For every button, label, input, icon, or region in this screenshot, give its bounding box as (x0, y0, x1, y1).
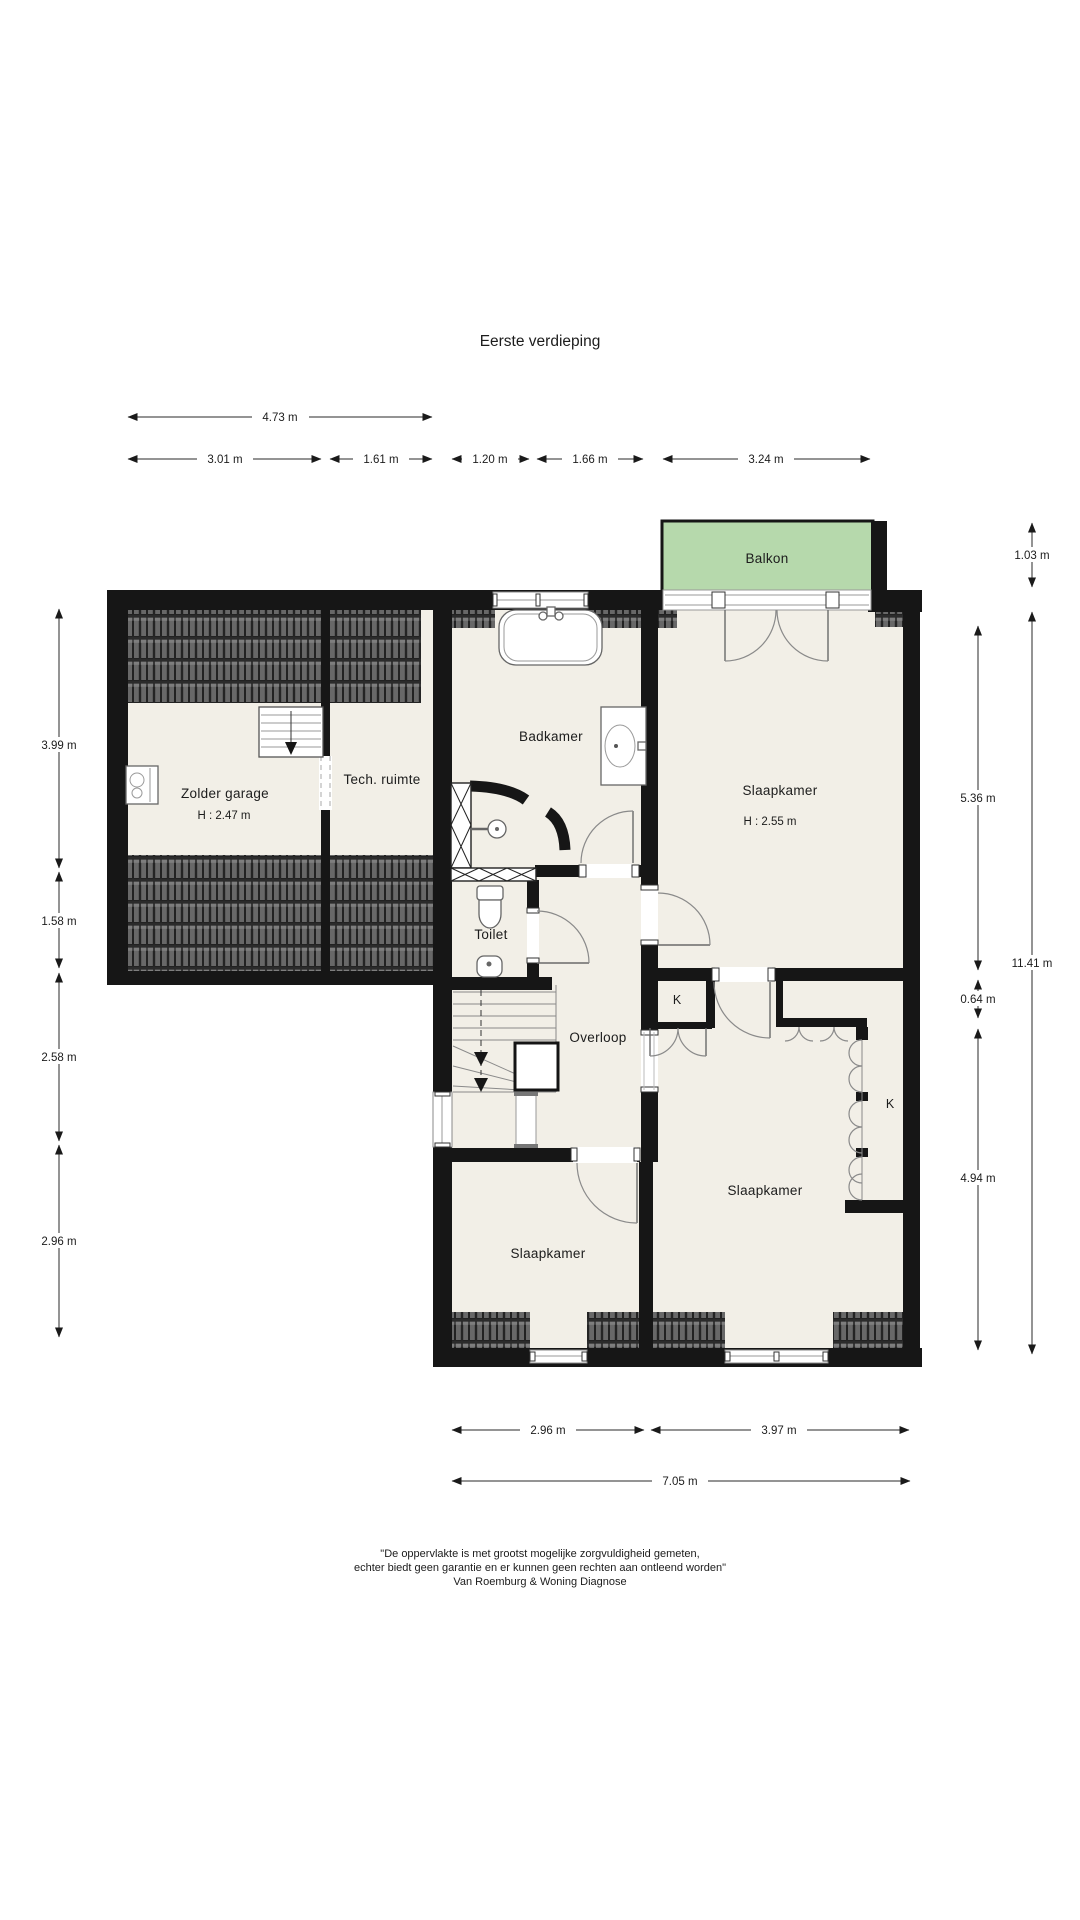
window-balkon-doors (663, 590, 871, 610)
floorplan-drawing: Eerste verdieping (0, 0, 1080, 1920)
radiator (516, 1094, 536, 1146)
bathtub (499, 607, 602, 665)
dim-top-seg-4: 3.24 m (748, 454, 783, 466)
dim-left-2: 2.58 m (41, 1052, 76, 1064)
dim-right-outer-1: 11.41 m (1012, 958, 1053, 970)
dim-top-seg-1: 1.61 m (363, 454, 398, 466)
dim-top-seg-3: 1.66 m (572, 454, 607, 466)
dim-top-seg-2: 1.20 m (472, 454, 507, 466)
boiler (126, 766, 158, 804)
label-kast-2: K (886, 1097, 895, 1111)
label-kast-1: K (673, 993, 682, 1007)
window-slaapkamer-se (725, 1350, 828, 1363)
label-tech-ruimte: Tech. ruimte (343, 772, 420, 787)
label-zolder-garage-height: H : 2.47 m (197, 810, 250, 822)
dim-top-total: 4.73 m (262, 412, 297, 424)
washbasin (601, 707, 646, 785)
disclaimer-line-1: "De oppervlakte is met grootst mogelijke… (380, 1548, 699, 1560)
label-overloop: Overloop (569, 1030, 626, 1045)
dim-bottom-total: 7.05 m (662, 1476, 697, 1488)
label-slaapkamer-sw: Slaapkamer (510, 1246, 585, 1261)
label-balkon: Balkon (745, 551, 788, 566)
page-title: Eerste verdieping (480, 333, 601, 350)
label-slaapkamer-se: Slaapkamer (727, 1183, 802, 1198)
dim-top-seg-0: 3.01 m (207, 454, 242, 466)
dim-right-inner-2: 4.94 m (960, 1173, 995, 1185)
dim-left-0: 3.99 m (41, 740, 76, 752)
label-badkamer: Badkamer (519, 729, 583, 744)
dim-left-1: 1.58 m (41, 916, 76, 928)
label-toilet: Toilet (474, 927, 507, 942)
disclaimer-line-3: Van Roemburg & Woning Diagnose (453, 1576, 626, 1588)
toilet-basin (477, 956, 502, 977)
disclaimer: "De oppervlakte is met grootst mogelijke… (354, 1548, 726, 1588)
dim-bottom-seg-1: 3.97 m (761, 1425, 796, 1437)
dim-right-outer-0: 1.03 m (1014, 550, 1049, 562)
dim-right-inner-0: 5.36 m (960, 793, 995, 805)
stairs-garage (259, 707, 323, 757)
dim-bottom-seg-0: 2.96 m (530, 1425, 565, 1437)
dim-right-inner-1: 0.64 m (960, 994, 995, 1006)
window-overloop (433, 1092, 452, 1147)
label-slaapkamer-ne-height: H : 2.55 m (743, 816, 796, 828)
dim-left-3: 2.96 m (41, 1236, 76, 1248)
disclaimer-line-2: echter biedt geen garantie en er kunnen … (354, 1562, 726, 1574)
toilet-fixture (477, 886, 503, 928)
window-slaapkamer-sw (530, 1350, 587, 1363)
stairwell-void (515, 1043, 558, 1090)
floorplan-page: Eerste verdieping (0, 0, 1080, 1920)
window-badkamer (493, 592, 588, 608)
label-slaapkamer-ne: Slaapkamer (742, 783, 817, 798)
label-zolder-garage: Zolder garage (181, 786, 269, 801)
